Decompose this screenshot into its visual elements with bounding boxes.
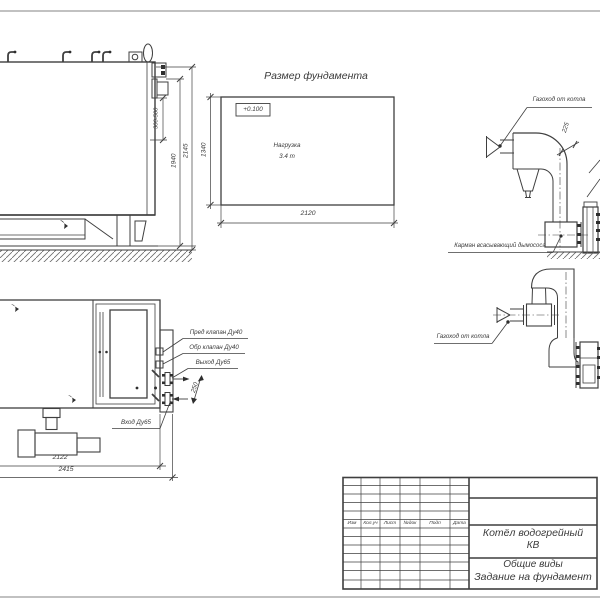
tb-doc-name-line2: Задание на фундамент (470, 571, 596, 583)
suction-pocket-label: Карман всасывающий дымососа (446, 243, 554, 250)
boiler-plan-view-linework (0, 300, 248, 457)
tb-product-name-line1: Котёл водогрейный (472, 527, 594, 539)
tb-doc-name-line1: Общие виды (472, 559, 594, 571)
flue-elevation-linework (448, 108, 600, 260)
tb-product-name-line2: КВ (472, 540, 594, 552)
tb-col-koluch: Кол.уч (362, 520, 380, 528)
flue-elevation-duct-label: Газоход от котла (524, 96, 594, 103)
foundation-plan-linework (206, 93, 398, 228)
tb-col-podp: Подп (421, 520, 450, 528)
load-label: Нагрузка (257, 142, 317, 149)
outlet-label: Выход Ду65 (188, 359, 238, 366)
foundation-outline (221, 97, 394, 205)
cyclone-cone (517, 169, 539, 191)
drawing-linework (0, 0, 600, 600)
level-mark: +0.100 (237, 106, 269, 113)
flue-plan-linework (434, 269, 600, 388)
foundation-view-title: Размер фундамента (231, 70, 401, 82)
dim-length-body: 2122 (34, 454, 86, 462)
tb-col-data: Дата (451, 520, 469, 528)
flue-plan-duct-label: Газоход от котла (427, 333, 499, 340)
page-edges (0, 11, 600, 597)
flue-elbow (513, 133, 567, 222)
smoke-exhauster-fan (583, 207, 598, 253)
dim-foundation-width: 2120 (282, 210, 334, 218)
inlet-label: Вход Ду65 (112, 419, 160, 426)
nozzle-panel (160, 330, 173, 412)
tb-col-ndok: №док (401, 520, 420, 528)
dim-boiler-height: 1940 (170, 146, 177, 176)
burner (18, 409, 100, 458)
dim-length-total: 2415 (40, 466, 92, 474)
tb-col-izm: Изм (344, 520, 361, 528)
dim-foundation-depth: 1340 (200, 135, 207, 165)
safety-valve-label: Пред клапан Ду40 (183, 329, 249, 336)
dim-range-300-500: 300-500 (154, 102, 161, 134)
drawing-sheet: Размер фундамента +0.100 Нагрузка 3.4 т … (0, 0, 600, 600)
check-valve-label: Обр клапан Ду40 (183, 344, 245, 351)
boiler-side-view (0, 44, 192, 262)
boiler-door (110, 310, 147, 398)
tb-col-list: Лист (381, 520, 400, 528)
dim-total-height: 2145 (182, 136, 189, 166)
load-value: 3.4 т (257, 153, 317, 160)
